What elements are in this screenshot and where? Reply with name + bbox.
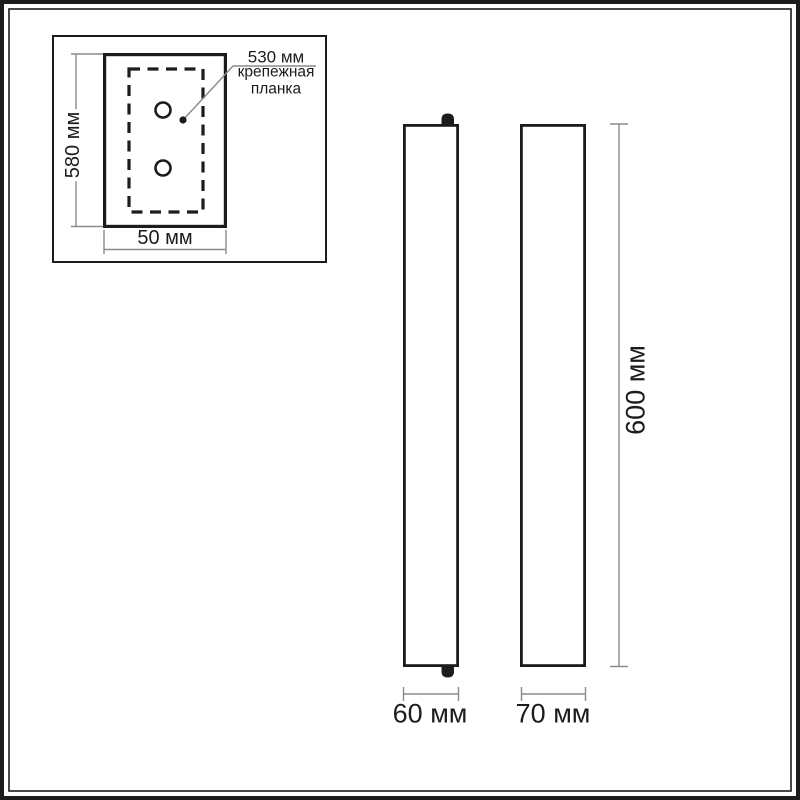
bottom-knob <box>442 667 455 678</box>
diagram-canvas: 580 мм 50 мм 530 мм крепежная планка 600… <box>0 0 800 800</box>
mounting-plate-outline <box>105 55 226 227</box>
side-view-body <box>521 125 584 665</box>
diagram-linework <box>0 0 800 800</box>
callout-name-label: крепежная планка <box>238 64 315 99</box>
front-view-group <box>404 114 457 678</box>
callout-leader-dot <box>179 116 186 123</box>
inset-height-label: 580 мм <box>62 109 84 181</box>
top-knob <box>442 114 455 125</box>
mounting-hole-top <box>156 103 171 118</box>
callout-name-line2: планка <box>238 81 315 98</box>
front-view-body <box>404 125 457 665</box>
height-label: 600 мм <box>623 345 650 435</box>
inset-width-label: 50 мм <box>137 228 192 248</box>
front-width-label: 60 мм <box>393 701 468 728</box>
side-width-label: 70 мм <box>516 701 591 728</box>
callout-name-line1: крепежная <box>238 64 315 81</box>
mounting-hole-bottom <box>156 161 171 176</box>
